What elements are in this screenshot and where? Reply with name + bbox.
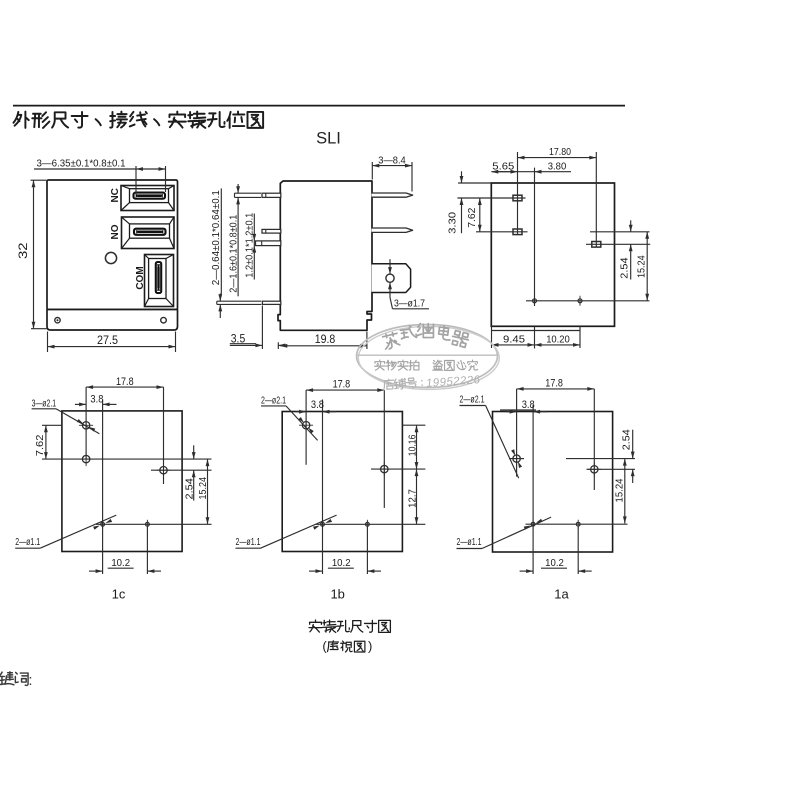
svg-text:17.8: 17.8 bbox=[545, 377, 563, 389]
svg-text:27.5: 27.5 bbox=[97, 333, 118, 347]
svg-text:5.65: 5.65 bbox=[492, 160, 514, 172]
svg-text:2—ø1.1: 2—ø1.1 bbox=[457, 536, 482, 548]
svg-text:2—ø1.1: 2—ø1.1 bbox=[15, 536, 40, 548]
svg-text:9.45: 9.45 bbox=[503, 334, 525, 346]
svg-text:1b: 1b bbox=[330, 586, 344, 601]
svg-text:COM: COM bbox=[135, 266, 146, 289]
svg-text:10.2: 10.2 bbox=[545, 557, 564, 569]
svg-text:7.62: 7.62 bbox=[34, 434, 46, 456]
svg-text:2—0.64±0.1*0.64±0.1: 2—0.64±0.1*0.64±0.1 bbox=[211, 190, 222, 285]
svg-text:2—ø2.1: 2—ø2.1 bbox=[261, 395, 286, 407]
svg-text:3.8: 3.8 bbox=[90, 394, 103, 406]
svg-text:15.24: 15.24 bbox=[613, 478, 625, 502]
svg-text:19.8: 19.8 bbox=[315, 334, 336, 346]
svg-text:2.54: 2.54 bbox=[184, 478, 196, 499]
svg-text:3—8.4: 3—8.4 bbox=[378, 154, 406, 166]
svg-text:1c: 1c bbox=[112, 586, 126, 601]
svg-text:3.30: 3.30 bbox=[446, 212, 458, 234]
svg-text:10.2: 10.2 bbox=[111, 557, 130, 569]
svg-text:1.2±0.1*1.2±0.1: 1.2±0.1*1.2±0.1 bbox=[244, 212, 255, 277]
svg-text:17.8: 17.8 bbox=[116, 376, 134, 388]
svg-text:3—ø1.7: 3—ø1.7 bbox=[394, 298, 425, 310]
svg-text:17.80: 17.80 bbox=[549, 146, 571, 158]
svg-text:3.8: 3.8 bbox=[522, 399, 535, 411]
svg-text:1a: 1a bbox=[554, 586, 569, 601]
svg-text::: : bbox=[28, 672, 32, 689]
svg-text:NO: NO bbox=[110, 224, 121, 239]
svg-text:2.54: 2.54 bbox=[621, 429, 633, 450]
svg-text:3—6.35±0.1*0.8±0.1: 3—6.35±0.1*0.8±0.1 bbox=[37, 159, 126, 170]
svg-text:10.16: 10.16 bbox=[406, 434, 418, 456]
svg-text:3—ø2.1: 3—ø2.1 bbox=[32, 398, 57, 410]
svg-text:10.20: 10.20 bbox=[546, 334, 570, 346]
svg-text:17.8: 17.8 bbox=[333, 379, 351, 391]
svg-text:3.8: 3.8 bbox=[311, 399, 324, 411]
svg-text:12.7: 12.7 bbox=[406, 489, 418, 508]
svg-text:15.24: 15.24 bbox=[635, 255, 647, 278]
svg-text:7.62: 7.62 bbox=[466, 208, 478, 228]
svg-text:32: 32 bbox=[16, 242, 30, 259]
svg-text:NC: NC bbox=[110, 188, 121, 202]
svg-text:): ) bbox=[368, 639, 372, 654]
svg-text:2.54: 2.54 bbox=[619, 257, 631, 278]
svg-text:(: ( bbox=[322, 639, 327, 654]
svg-text:2—ø1.1: 2—ø1.1 bbox=[236, 536, 261, 548]
svg-text:15.24: 15.24 bbox=[197, 477, 209, 500]
svg-text:2—ø2.1: 2—ø2.1 bbox=[460, 394, 485, 406]
svg-text:10.2: 10.2 bbox=[332, 557, 351, 569]
svg-text:SLI: SLI bbox=[316, 130, 341, 148]
svg-text:3.80: 3.80 bbox=[548, 160, 567, 172]
